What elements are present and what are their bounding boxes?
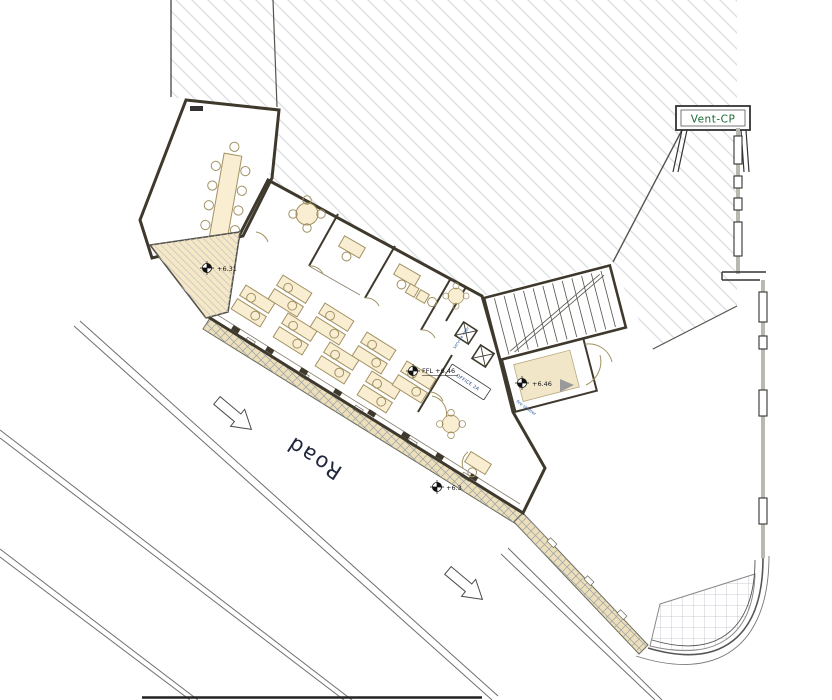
front-level-label: +6.3 bbox=[446, 484, 462, 492]
ffl-label: FFL +6.46 bbox=[422, 367, 455, 375]
floor-plan-page: Road bbox=[0, 0, 832, 700]
road-arrow-2 bbox=[441, 562, 490, 608]
room-tag bbox=[190, 106, 203, 111]
entrance-ramp: +6.31 bbox=[150, 232, 240, 318]
entrance-level-label: +6.46 bbox=[532, 380, 552, 388]
road-label: Road bbox=[282, 431, 346, 484]
entrance-mat bbox=[514, 350, 580, 401]
floor-plan-drawing: Road bbox=[0, 0, 832, 700]
service-riser-label: service riser bbox=[452, 325, 471, 349]
service-risers: service riser bbox=[452, 322, 494, 367]
road-arrow-1 bbox=[210, 392, 259, 438]
corner-landscape bbox=[636, 556, 769, 664]
reception-counter bbox=[432, 396, 447, 418]
vent-label: Vent-CP bbox=[691, 114, 736, 126]
office-desk-a bbox=[334, 236, 365, 267]
level-ramp-label: +6.31 bbox=[217, 265, 237, 273]
kitchenette-fixtures bbox=[405, 284, 438, 309]
